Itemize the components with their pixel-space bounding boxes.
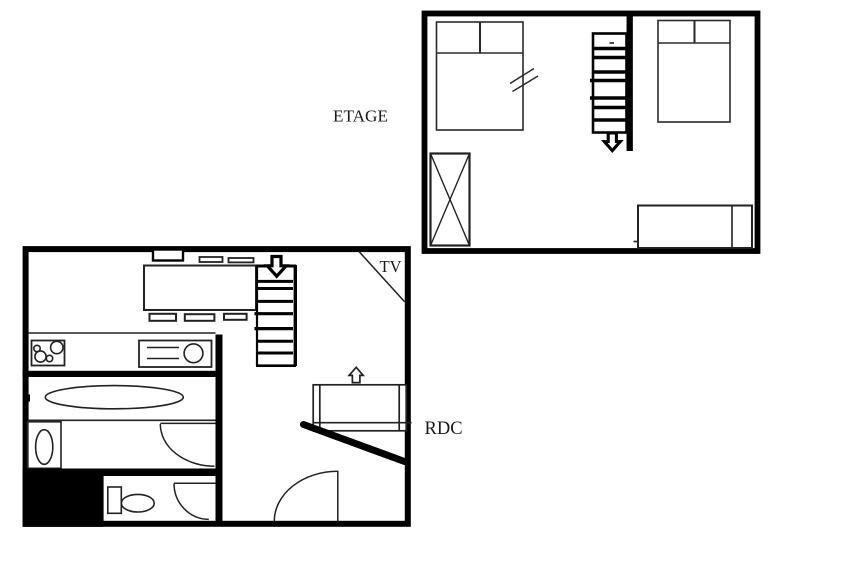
svg-text:RDC: RDC (425, 419, 463, 439)
svg-text:TV: TV (380, 257, 402, 276)
svg-text:ETAGE: ETAGE (333, 107, 388, 126)
